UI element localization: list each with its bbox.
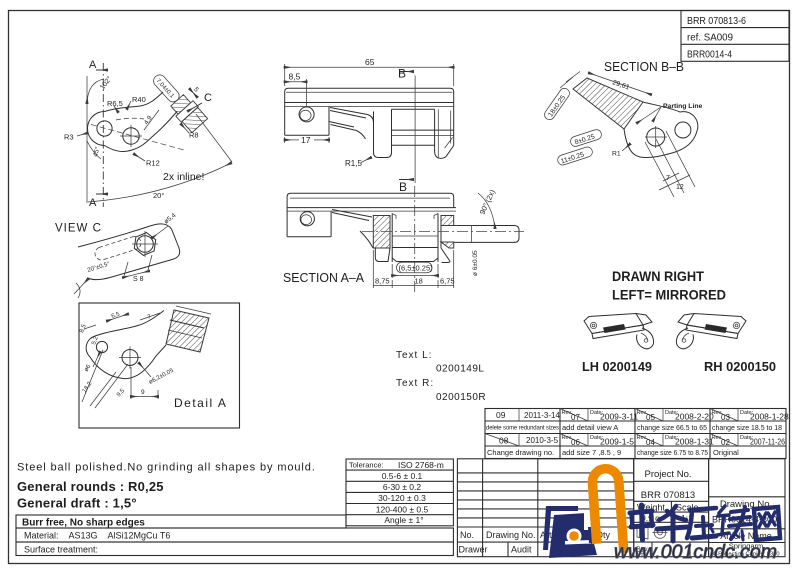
svg-text:04: 04 bbox=[646, 438, 655, 447]
svg-text:change size 66.5 to 65: change size 66.5 to 65 bbox=[637, 423, 707, 432]
svg-text:delete some redundant sizes: delete some redundant sizes bbox=[486, 426, 559, 432]
svg-text:VIEW C: VIEW C bbox=[55, 223, 102, 235]
svg-text:02: 02 bbox=[721, 438, 730, 447]
svg-text:General draft : 1,5°: General draft : 1,5° bbox=[17, 496, 137, 511]
svg-text:Surface treatment:: Surface treatment: bbox=[24, 545, 98, 555]
svg-text:change size 18.5 to 18: change size 18.5 to 18 bbox=[712, 423, 782, 432]
svg-text:DRAWN RIGHT: DRAWN RIGHT bbox=[612, 269, 705, 284]
svg-text:SECTION A–A: SECTION A–A bbox=[283, 270, 364, 285]
svg-text:Drawing No.: Drawing No. bbox=[486, 530, 536, 540]
svg-text:2x inline!: 2x inline! bbox=[163, 171, 204, 183]
svg-text:2010-3-5: 2010-3-5 bbox=[526, 436, 559, 445]
svg-text:2009-3-11: 2009-3-11 bbox=[600, 412, 638, 422]
svg-text:General rounds : R0,25: General rounds : R0,25 bbox=[17, 479, 164, 494]
svg-text:05: 05 bbox=[646, 413, 655, 422]
svg-text:Audit: Audit bbox=[511, 545, 532, 555]
svg-text:120-400 ± 0.5: 120-400 ± 0.5 bbox=[376, 504, 429, 514]
svg-text:ø 6±0.05: ø 6±0.05 bbox=[472, 250, 479, 276]
svg-text:R3: R3 bbox=[64, 133, 74, 142]
svg-text:2008-1-28: 2008-1-28 bbox=[750, 412, 789, 422]
svg-text:Text R:: Text R: bbox=[396, 378, 434, 389]
svg-text:6,75: 6,75 bbox=[440, 277, 455, 286]
svg-text:BRR 070813: BRR 070813 bbox=[641, 490, 695, 501]
svg-text:R1: R1 bbox=[612, 151, 621, 158]
svg-text:Text L:: Text L: bbox=[396, 350, 432, 361]
svg-text:LH 0200149: LH 0200149 bbox=[582, 359, 652, 374]
svg-text:Detail A: Detail A bbox=[174, 396, 227, 410]
svg-text:R1,5: R1,5 bbox=[345, 159, 362, 168]
svg-text:9: 9 bbox=[141, 389, 145, 396]
svg-text:ref. SA009: ref. SA009 bbox=[687, 32, 733, 44]
svg-text:Original: Original bbox=[713, 448, 739, 457]
svg-text:Project No.: Project No. bbox=[645, 469, 692, 480]
svg-text:2008-2-20: 2008-2-20 bbox=[675, 412, 714, 422]
svg-text:BRR0014-4: BRR0014-4 bbox=[687, 49, 732, 61]
svg-text:07: 07 bbox=[571, 413, 580, 422]
svg-text:A: A bbox=[89, 59, 97, 71]
svg-text:8,75: 8,75 bbox=[375, 277, 390, 286]
svg-text:Angle ± 1°: Angle ± 1° bbox=[384, 515, 423, 525]
svg-text:65: 65 bbox=[365, 57, 375, 67]
svg-text:2009-1-5: 2009-1-5 bbox=[600, 437, 634, 447]
svg-text:09: 09 bbox=[496, 410, 506, 420]
svg-text:03: 03 bbox=[721, 413, 730, 422]
svg-text:LEFT= MIRRORED: LEFT= MIRRORED bbox=[612, 288, 726, 303]
svg-text:Steel ball polished.No grindin: Steel ball polished.No grinding all shap… bbox=[17, 462, 316, 474]
svg-text:BRR 070813-6: BRR 070813-6 bbox=[687, 15, 746, 27]
svg-text:6-30 ± 0.2: 6-30 ± 0.2 bbox=[383, 482, 421, 492]
svg-text:S 8: S 8 bbox=[133, 276, 144, 283]
svg-text:12: 12 bbox=[676, 184, 684, 191]
svg-text:Burr free, No sharp edges: Burr free, No sharp edges bbox=[22, 518, 145, 529]
svg-text:ISO 2768-m: ISO 2768-m bbox=[398, 460, 444, 470]
svg-text:Change drawing no.: Change drawing no. bbox=[487, 448, 554, 457]
svg-text:18: 18 bbox=[415, 277, 423, 286]
svg-text:30-120 ± 0.3: 30-120 ± 0.3 bbox=[378, 493, 426, 503]
svg-text:A: A bbox=[89, 197, 97, 209]
svg-text:Parting Line: Parting Line bbox=[663, 103, 702, 110]
svg-text:2007-11-26: 2007-11-26 bbox=[750, 437, 785, 447]
svg-text:SECTION B–B: SECTION B–B bbox=[604, 59, 684, 74]
svg-text:B: B bbox=[399, 180, 407, 194]
svg-text:RH 0200150: RH 0200150 bbox=[704, 359, 776, 374]
svg-text:R6,5: R6,5 bbox=[107, 99, 123, 108]
svg-text:8,5: 8,5 bbox=[289, 72, 301, 82]
svg-text:08: 08 bbox=[499, 436, 509, 446]
svg-text:add size 7 ,8.5 , 9: add size 7 ,8.5 , 9 bbox=[562, 448, 621, 457]
svg-text:Material: AS13G AlSi12Mg: Material: AS13G AlSi12MgCu T6 bbox=[24, 531, 170, 541]
svg-text:Tolerance:: Tolerance: bbox=[349, 461, 384, 470]
svg-text:C: C bbox=[204, 92, 212, 104]
svg-text:Drawer: Drawer bbox=[459, 545, 488, 555]
svg-text:17: 17 bbox=[301, 135, 311, 145]
svg-text:2011-3-14: 2011-3-14 bbox=[524, 411, 560, 420]
svg-text:www.001cndc.com: www.001cndc.com bbox=[614, 541, 777, 563]
svg-text:20°: 20° bbox=[153, 191, 164, 200]
svg-text:R8: R8 bbox=[189, 131, 199, 140]
svg-text:B: B bbox=[398, 67, 406, 81]
svg-text:2008-1-31: 2008-1-31 bbox=[675, 437, 714, 447]
svg-text:change size 6.75 to 8.75: change size 6.75 to 8.75 bbox=[637, 448, 708, 457]
svg-text:0200150R: 0200150R bbox=[436, 392, 486, 403]
svg-text:(6,5±0.25): (6,5±0.25) bbox=[399, 264, 434, 273]
svg-text:7: 7 bbox=[666, 175, 670, 182]
svg-text:No.: No. bbox=[460, 530, 474, 540]
svg-text:0200149L: 0200149L bbox=[436, 364, 485, 375]
svg-text:R40: R40 bbox=[132, 95, 146, 104]
svg-text:R12: R12 bbox=[146, 159, 160, 168]
svg-text:0.5-6 ± 0.1: 0.5-6 ± 0.1 bbox=[382, 471, 423, 481]
svg-text:add detail view A: add detail view A bbox=[562, 423, 618, 432]
svg-text:06: 06 bbox=[571, 438, 580, 447]
